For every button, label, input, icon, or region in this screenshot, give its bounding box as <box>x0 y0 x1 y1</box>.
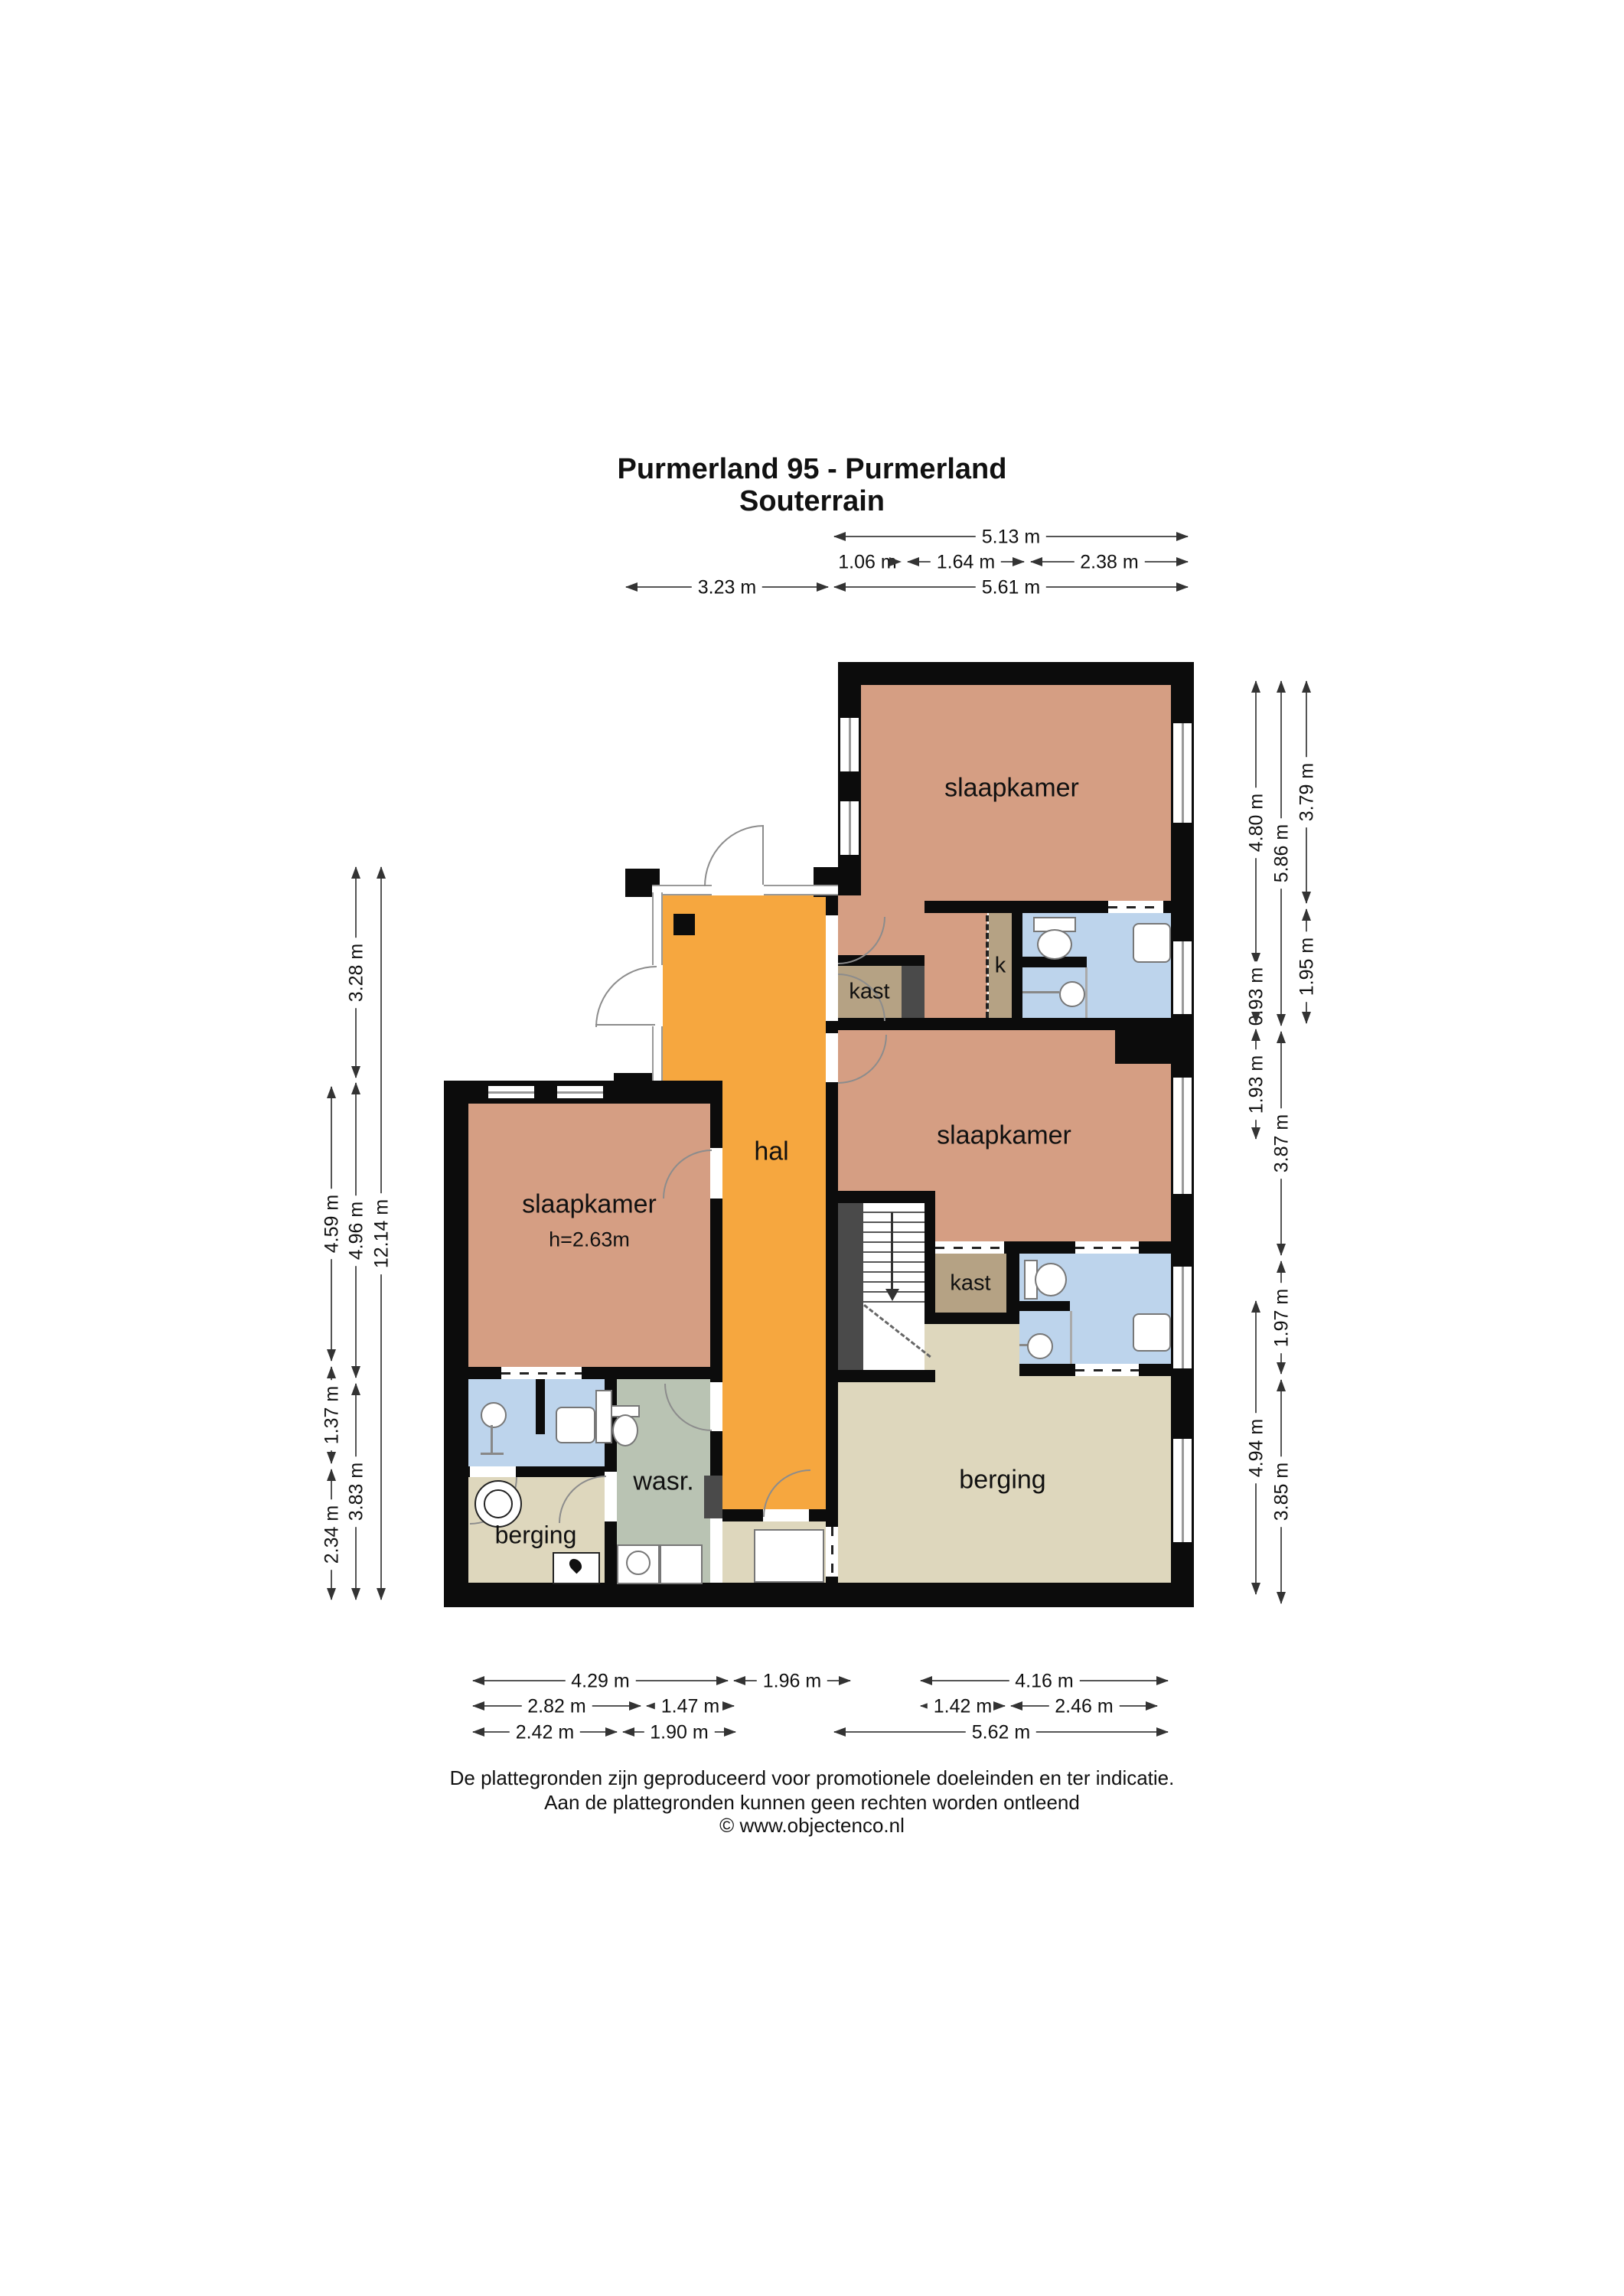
window <box>840 718 859 771</box>
dimension-label: 3.23 m <box>692 577 762 599</box>
dimension-label: 1.97 m <box>1271 1282 1293 1352</box>
dashed-window <box>501 1367 582 1379</box>
dryer-icon <box>660 1544 703 1584</box>
room-label-bedroom-left: slaapkamer <box>522 1190 657 1220</box>
wall-partition <box>1019 1301 1070 1311</box>
dimension-line: 1.42 m <box>921 1705 1005 1707</box>
dimension-line: 1.93 m <box>1255 1029 1257 1139</box>
window <box>488 1086 534 1098</box>
dashed-opening <box>826 1527 838 1577</box>
cabinet-icon <box>595 1390 612 1443</box>
dimension-label: 3.79 m <box>1296 757 1319 827</box>
dimension-line: 2.34 m <box>331 1469 332 1600</box>
page-title: Purmerland 95 - Purmerland <box>618 453 1007 486</box>
door-arc <box>595 966 657 1027</box>
door-opening <box>470 1466 516 1477</box>
shower-stand-icon <box>491 1425 493 1454</box>
wall <box>838 685 861 895</box>
page-subtitle: Souterrain <box>739 485 885 518</box>
room-label-bedroom-left-height: h=2.63m <box>549 1228 630 1252</box>
room-label-k: k <box>995 954 1006 979</box>
dimension-label: 3.83 m <box>346 1456 368 1527</box>
dimension-label: 4.29 m <box>565 1671 635 1693</box>
window <box>557 1086 603 1098</box>
dimension-label: 12.14 m <box>371 1192 393 1274</box>
dimension-line: 2.42 m <box>473 1731 617 1733</box>
copyright-line: © www.objectenco.nl <box>719 1814 905 1838</box>
shower-arm-icon <box>1022 991 1059 993</box>
dimension-line: 1.90 m <box>623 1731 735 1733</box>
dimension-label: 3.28 m <box>346 937 368 1007</box>
room-label-bedroom-right: slaapkamer <box>937 1121 1071 1151</box>
dimension-label: 4.94 m <box>1246 1412 1268 1482</box>
wall <box>838 1191 925 1203</box>
dimension-line: 3.23 m <box>626 586 828 588</box>
dashed-window <box>1075 1364 1139 1376</box>
dimension-label: 1.64 m <box>931 552 1001 574</box>
dimension-label: 4.80 m <box>1246 788 1268 858</box>
dimension-label: 1.37 m <box>321 1380 344 1450</box>
dimension-line: 12.14 m <box>380 867 382 1600</box>
boiler-icon <box>484 1489 513 1518</box>
dimension-line: 5.61 m <box>834 586 1188 588</box>
dimension-line: 5.86 m <box>1280 681 1282 1026</box>
dimension-label: 4.16 m <box>1009 1671 1079 1693</box>
window <box>1173 941 1192 1014</box>
dimension-line: 4.59 m <box>331 1087 332 1361</box>
dimension-line: 2.46 m <box>1011 1705 1157 1707</box>
dimension-line: 3.79 m <box>1306 681 1307 903</box>
room-label-laundry: wasr. <box>633 1467 693 1497</box>
dimension-label: 2.82 m <box>521 1696 592 1718</box>
dimension-line: 3.83 m <box>355 1384 357 1600</box>
dimension-line: 1.64 m <box>908 561 1024 563</box>
wall-partition <box>536 1379 545 1434</box>
dimension-line: 1.47 m <box>647 1705 734 1707</box>
disclaimer-line-1: De plattegronden zijn geproduceerd voor … <box>450 1766 1175 1790</box>
toilet-icon <box>612 1414 638 1446</box>
window <box>1173 1078 1192 1194</box>
dimension-label: 2.42 m <box>510 1722 580 1744</box>
dimension-label: 1.95 m <box>1296 931 1319 1001</box>
room-label-closet-top: kast <box>849 980 889 1005</box>
dimension-line: 4.29 m <box>473 1680 728 1681</box>
room-label-closet-mid: kast <box>950 1271 990 1296</box>
dimension-label: 3.87 m <box>1271 1108 1293 1179</box>
door-opening <box>605 1472 617 1521</box>
sink-icon <box>556 1407 595 1443</box>
dimension-line: 5.13 m <box>834 536 1188 537</box>
dimension-line: 1.37 m <box>331 1367 332 1463</box>
dimension-label: 4.59 m <box>321 1189 344 1259</box>
staircase-arrow-line <box>891 1212 893 1289</box>
dashed-window <box>1108 901 1163 913</box>
wall <box>838 1018 1171 1030</box>
wall <box>444 1081 468 1607</box>
window <box>840 801 859 855</box>
sink-icon <box>1133 1313 1171 1352</box>
door-opening <box>826 1033 838 1082</box>
dimension-label: 5.13 m <box>976 527 1046 549</box>
toilet-icon <box>1035 1263 1067 1296</box>
shower-glass <box>1085 967 1088 1018</box>
shower-glass <box>1070 1311 1072 1364</box>
dimension-label: 2.34 m <box>321 1499 344 1570</box>
dimension-line: 3.87 m <box>1280 1032 1282 1255</box>
shower-head-icon <box>481 1402 507 1428</box>
wall-niche <box>1115 1030 1171 1064</box>
dimension-line: 2.38 m <box>1031 561 1188 563</box>
wall <box>710 1081 722 1509</box>
wall <box>838 662 1194 685</box>
column <box>673 914 695 935</box>
dimension-line: 2.82 m <box>473 1705 641 1707</box>
washer-icon <box>626 1551 651 1575</box>
dimension-label: 2.38 m <box>1074 552 1144 574</box>
dimension-label: 4.96 m <box>346 1195 368 1265</box>
wall <box>925 901 1108 913</box>
window <box>1173 1439 1192 1542</box>
wall <box>925 1191 935 1324</box>
wall-duct <box>902 966 925 1018</box>
shower-head-icon <box>1059 981 1085 1007</box>
dimension-label: 1.93 m <box>1246 1049 1268 1119</box>
dimension-line: 1.06 m <box>834 561 901 563</box>
toilet-icon <box>1037 929 1072 960</box>
dimension-label: 5.61 m <box>976 577 1046 599</box>
door-opening <box>826 915 838 1021</box>
door-opening <box>710 1382 722 1431</box>
wall-stair <box>838 1203 863 1378</box>
dimension-line: 1.96 m <box>734 1680 850 1681</box>
dashed-window <box>1075 1241 1139 1254</box>
door-arc <box>704 825 764 886</box>
wall <box>1163 901 1171 913</box>
door-opening <box>710 1148 722 1199</box>
dimension-label: 1.47 m <box>655 1696 726 1718</box>
room-label-storage-left: berging <box>495 1521 577 1550</box>
dimension-line: 4.94 m <box>1255 1301 1257 1594</box>
dimension-label: 1.42 m <box>928 1696 998 1718</box>
dimension-line: 4.80 m <box>1255 681 1257 964</box>
dimension-label: 5.62 m <box>966 1722 1036 1744</box>
room-label-hall: hal <box>754 1137 788 1167</box>
staircase-treads <box>863 1203 925 1303</box>
dimension-line: 4.16 m <box>921 1680 1168 1681</box>
window <box>1173 1267 1192 1368</box>
dimension-line: 4.96 m <box>355 1083 357 1378</box>
dimension-label: 0.93 m <box>1246 961 1268 1032</box>
dimension-line: 1.95 m <box>1306 909 1307 1023</box>
dimension-line: 0.93 m <box>1255 970 1257 1023</box>
shower-stand-icon <box>481 1453 504 1455</box>
room-label-bedroom-top: slaapkamer <box>944 774 1079 804</box>
closet-icon <box>754 1529 824 1583</box>
dimension-line: 3.85 m <box>1280 1380 1282 1603</box>
disclaimer-line-2: Aan de plattegronden kunnen geen rechten… <box>544 1791 1080 1815</box>
window <box>1173 723 1192 823</box>
dimension-line: 5.62 m <box>834 1731 1168 1733</box>
floorplan-page: Purmerland 95 - Purmerland Souterrain <box>0 0 1624 2296</box>
dimension-label: 1.90 m <box>644 1722 714 1744</box>
shower-head-icon <box>1027 1333 1053 1359</box>
wall <box>838 1370 935 1382</box>
staircase-arrow-head <box>885 1289 899 1301</box>
wall <box>444 1583 1194 1607</box>
wall <box>935 1313 1019 1324</box>
dimension-label: 3.85 m <box>1271 1456 1293 1527</box>
folding-door <box>986 915 989 1018</box>
wall <box>1012 913 1022 1018</box>
dimension-label: 1.96 m <box>757 1671 827 1693</box>
room-label-storage-right: berging <box>959 1466 1045 1495</box>
dashed-opening <box>935 1241 1004 1254</box>
dimension-line: 1.97 m <box>1280 1261 1282 1374</box>
wall-stub <box>704 1476 722 1518</box>
dimension-label: 5.86 m <box>1271 818 1293 889</box>
dimension-label: 2.46 m <box>1048 1696 1119 1718</box>
dimension-label: 1.06 m <box>832 552 902 574</box>
dimension-line: 3.28 m <box>355 867 357 1078</box>
sink-icon <box>1133 923 1171 963</box>
